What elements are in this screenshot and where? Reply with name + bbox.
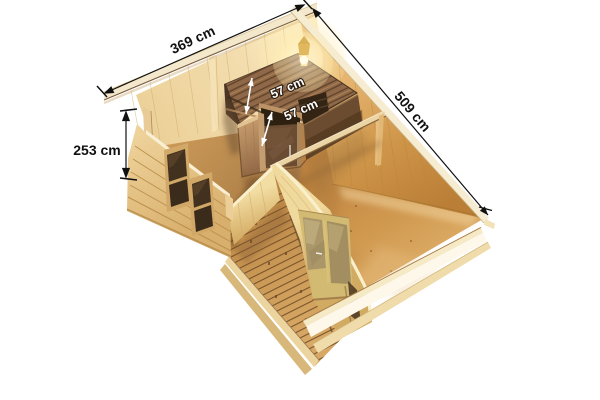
svg-text:253 cm: 253 cm	[73, 142, 120, 158]
